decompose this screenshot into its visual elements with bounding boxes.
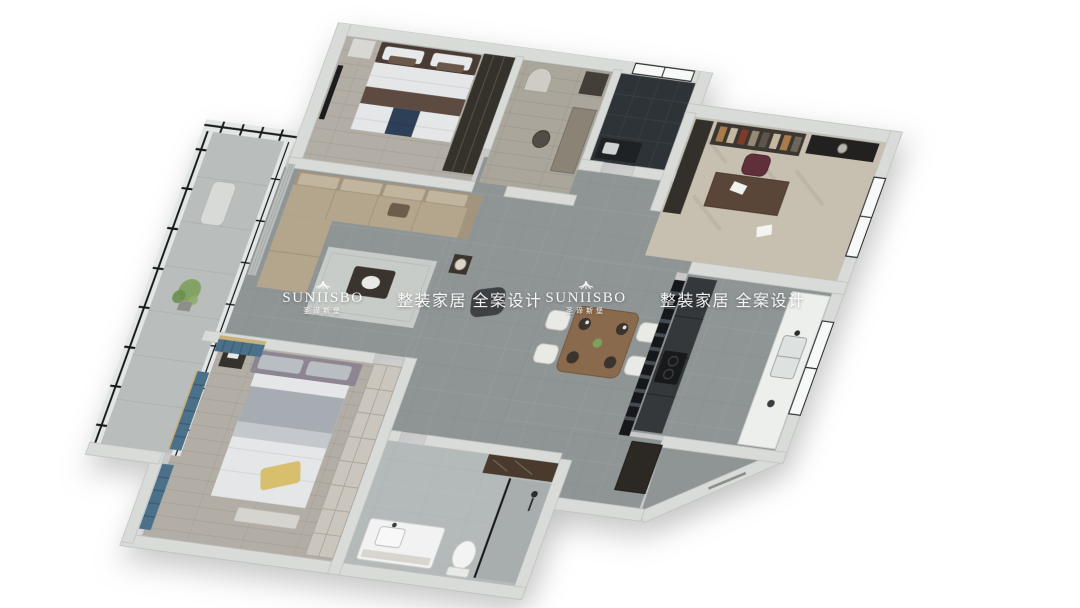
coffee-table [304,247,437,328]
floorplan-stage: SUNIISBO 圣谛斯堡 整装家居 全案设计 SUNIISBO 圣谛斯堡 整装… [0,0,1080,608]
floorplan-3d-scene [31,9,952,608]
